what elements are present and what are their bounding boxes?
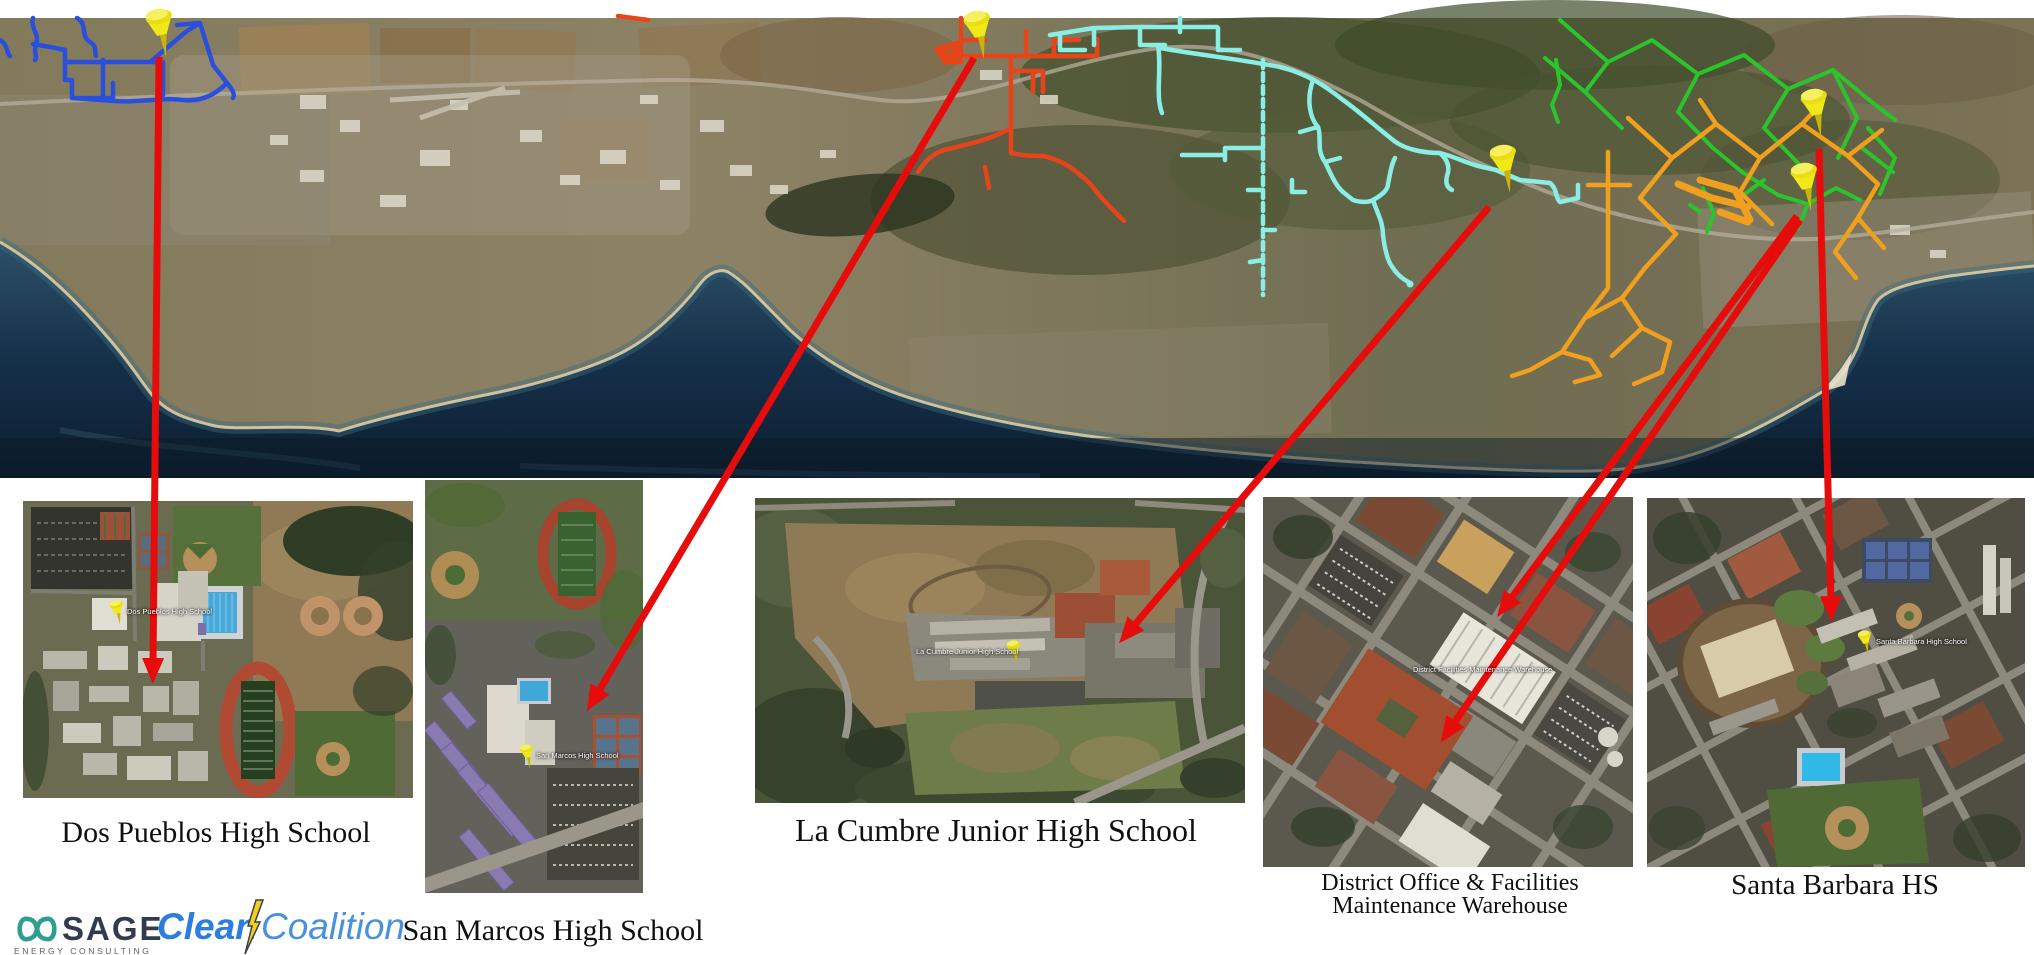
site-image-santa-barbara	[1647, 498, 2025, 867]
place-label-santa-barbara: Santa Barbara High School	[1876, 637, 1967, 646]
caption-santa-barbara: Santa Barbara HS	[1731, 871, 1939, 900]
caption-district-line2: Maintenance Warehouse	[1321, 895, 1579, 918]
clean-coalition-word2: Coalition	[261, 906, 405, 948]
sage-logo: SAGE ENERGY CONSULTING	[13, 908, 163, 955]
sage-tagline: ENERGY CONSULTING	[14, 946, 151, 955]
sage-wordmark: SAGE	[62, 910, 164, 948]
deep-water-band	[0, 438, 2034, 478]
caption-district-line1: District Office & Facilities	[1321, 872, 1579, 895]
place-label-dos-pueblos: Dos Pueblos High School	[127, 607, 212, 616]
slide: Dos Pueblos High School San Marcos High …	[0, 0, 2034, 955]
caption-la-cumbre: La Cumbre Junior High School	[795, 814, 1197, 846]
place-label-san-marcos: San Marcos High School	[536, 751, 619, 760]
site-image-district-office	[1263, 497, 1633, 867]
overview-map	[0, 0, 2034, 478]
caption-san-marcos: San Marcos High School	[403, 916, 704, 946]
sage-infinity-icon	[13, 912, 61, 946]
caption-district-office: District Office & Facilities Maintenance…	[1321, 872, 1579, 918]
caption-dos-pueblos: Dos Pueblos High School	[61, 818, 370, 848]
site-image-san-marcos	[425, 480, 643, 893]
place-label-la-cumbre: La Cumbre Junior High School	[916, 647, 1018, 656]
site-image-dos-pueblos	[23, 501, 413, 798]
place-label-district-office: District Facilities Maintenance Warehous…	[1413, 665, 1552, 674]
